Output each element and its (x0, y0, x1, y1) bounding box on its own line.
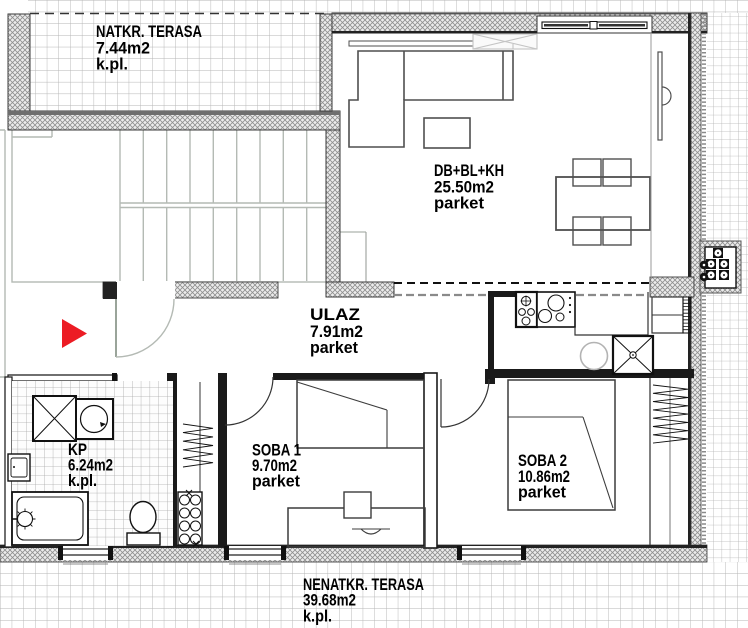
washing-machine-icon (33, 396, 76, 441)
coffee-table (424, 118, 470, 148)
room-floor: parket (518, 484, 566, 502)
closet-right-wall (218, 373, 227, 547)
room-floor: parket (434, 195, 485, 213)
bathtub-icon (12, 492, 88, 545)
entry-door-swing (116, 299, 174, 357)
bottom-terrace-floor (0, 562, 748, 628)
hall-closet (178, 382, 213, 547)
dining-chair (573, 217, 601, 245)
dryer-icon (76, 399, 113, 439)
kitchen (516, 292, 691, 374)
wardrobe (650, 378, 688, 545)
kitchen-corner-unit (652, 297, 683, 333)
closet-radiator-icon (178, 490, 202, 547)
soba1-furniture (288, 380, 425, 547)
chair (344, 492, 371, 518)
bedroom2-door-swing (441, 379, 489, 427)
bath-sink-icon (8, 454, 30, 481)
kitchen-sink-icon (537, 292, 575, 327)
sofa (349, 51, 513, 147)
bed (297, 380, 424, 448)
top-terrace-strip (28, 0, 748, 14)
floor-plan: NATKR. TERASA 7.44m2 k.pl. DB+BL+KH 25.5… (0, 0, 748, 628)
terrace-left-wall (8, 14, 30, 111)
room-name: NATKR. TERASA (96, 23, 202, 41)
kitchen-counter (575, 292, 648, 335)
skylight-icon (473, 34, 537, 49)
stair-divider-wall (326, 130, 340, 283)
dining-chair (603, 159, 631, 186)
kitchen-soba2-wall (485, 369, 694, 378)
room-floor: parket (310, 339, 358, 357)
room-label-soba1: SOBA 1 9.70m2 parket (252, 442, 301, 491)
terrace-right-wall (320, 14, 332, 111)
windows-top (542, 22, 647, 30)
room-label-ulaz: ULAZ 7.91m2 parket (310, 306, 363, 357)
room-floor: parket (252, 473, 300, 491)
desk-drawer (352, 529, 390, 534)
wall-radiator-icon (658, 52, 671, 140)
round-table-icon (581, 343, 608, 370)
room-name: ULAZ (310, 306, 360, 324)
room-name: DB+BL+KH (434, 162, 504, 180)
soba1-right-wall (424, 373, 437, 548)
room-label-soba2: SOBA 2 10.86m2 parket (518, 452, 570, 502)
bedroom1-door-swing (225, 377, 273, 425)
entry-arrow-icon (62, 319, 87, 348)
stove-icon (516, 292, 537, 327)
room-floor: k.pl. (68, 472, 97, 490)
wardrobe-rail-icon (183, 424, 213, 467)
ac-unit-icon (700, 241, 741, 293)
dining-chair (603, 217, 631, 245)
sink-x-unit-icon (613, 336, 653, 374)
building-left-edge (0, 130, 5, 377)
kp-top-wall (8, 375, 117, 381)
soba1-top-wall (273, 373, 435, 380)
right-terrace-strip (707, 13, 748, 628)
living-kitchen-corner-wall (650, 277, 694, 297)
divider-foot-wall (326, 282, 394, 297)
room-floor: k.pl. (303, 608, 332, 626)
room-floor: k.pl. (96, 56, 128, 74)
room-label-db-bl-kh: DB+BL+KH 25.50m2 parket (434, 162, 504, 213)
living-room-furniture (349, 33, 671, 277)
kitchen-partition-wall (488, 291, 494, 376)
dining-chair (573, 159, 601, 186)
shaft-line (339, 232, 366, 282)
